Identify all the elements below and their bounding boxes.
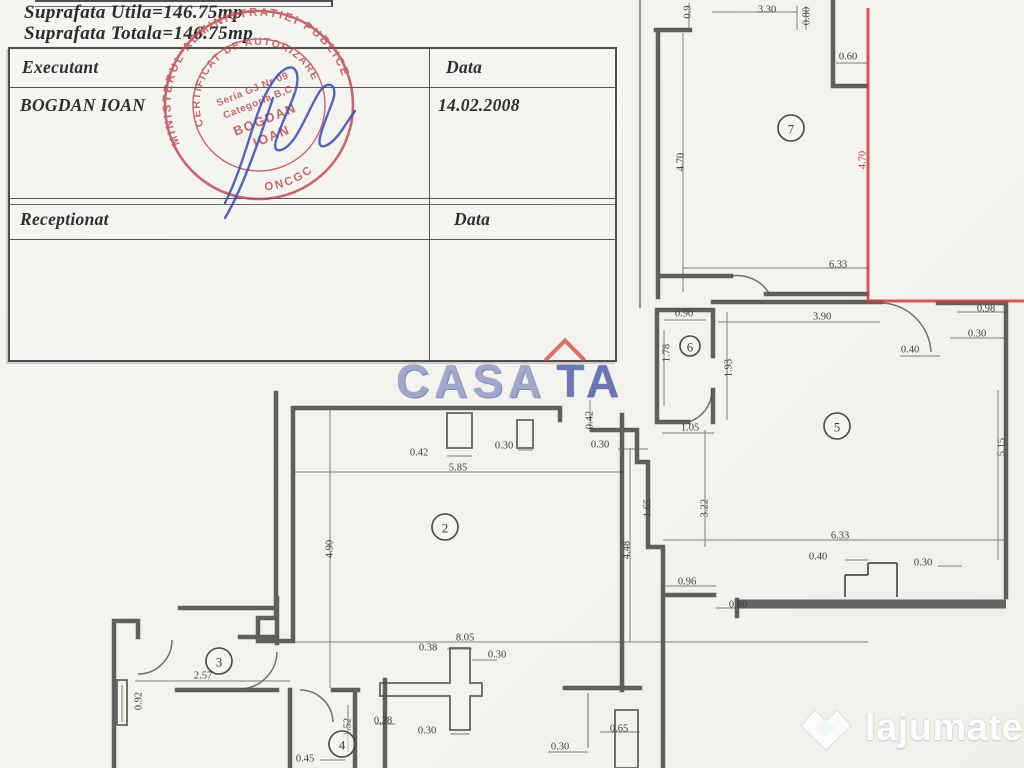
dimension-label: 0.30 xyxy=(488,649,506,660)
room-number-text: 6 xyxy=(687,340,694,355)
dimension-label: 4.48 xyxy=(621,541,632,559)
scanned-floor-plan-page: 0.93.300.800.604.704.706.330.901.781.931… xyxy=(0,0,1024,768)
data-label-1: Data xyxy=(446,57,482,78)
dimension-label: 0.40 xyxy=(809,551,827,562)
dimension-label: 0.30 xyxy=(551,741,569,752)
date-value: 14.02.2008 xyxy=(438,95,520,116)
room-number-text: 4 xyxy=(339,738,346,753)
dimension-label: 4.90 xyxy=(324,540,335,558)
dimension-label: 1.65 xyxy=(642,499,653,517)
dimension-label: 8.05 xyxy=(456,632,474,643)
dimension-label: 0.92 xyxy=(133,692,144,710)
red-annotation-line xyxy=(868,8,1024,301)
stamp-svg: MINISTERUL ADMINISTRATIEI PUBLICE ONCGC … xyxy=(155,3,370,235)
dimension-label: 0.30 xyxy=(591,439,609,450)
dimension-label: 0.96 xyxy=(678,576,696,587)
room-number-text: 7 xyxy=(788,122,795,137)
dimension-label: 0.98 xyxy=(977,303,995,314)
dimension-label: 0.30 xyxy=(495,440,513,451)
lajumate-watermark: lajumate.ro xyxy=(795,702,1024,754)
dimension-label: 0.90 xyxy=(675,308,693,319)
dimension-label: 6.33 xyxy=(829,259,847,270)
dimension-label: 0.30 xyxy=(914,557,932,568)
lajumate-logo-icon xyxy=(795,702,857,754)
dimension-label: 3.30 xyxy=(758,4,776,15)
dimension-label: 0.40 xyxy=(901,344,919,355)
dimension-label: 6.33 xyxy=(831,530,849,541)
wall-notch xyxy=(845,563,897,597)
dimension-label: 0.42 xyxy=(584,411,595,429)
room-number-text: 3 xyxy=(216,655,223,670)
dimension-label: 0.28 xyxy=(374,715,392,726)
room-number-text: 2 xyxy=(442,521,449,536)
dimension-label: 1.93 xyxy=(723,359,734,377)
data-label-2: Data xyxy=(454,209,490,230)
watermark-word-casa: CASA xyxy=(396,355,546,407)
executant-name: BOGDAN IOAN xyxy=(20,95,145,116)
room-number-text: 5 xyxy=(834,420,841,435)
executant-label: Executant xyxy=(22,57,99,78)
dimension-label: 0.60 xyxy=(839,51,857,62)
dimension-label: 5.85 xyxy=(449,462,467,473)
dimension-label: 4.70 xyxy=(857,151,868,169)
dimension-label: 0.45 xyxy=(296,753,314,764)
dimension-label: 3.22 xyxy=(699,499,710,517)
dimension-label: 0.42 xyxy=(410,447,428,458)
dimension-label: 1.05 xyxy=(681,422,699,433)
casa-ta-watermark: CASATA xyxy=(396,354,624,408)
dimension-label: 0.38 xyxy=(419,642,437,653)
dimension-label: 0.9 xyxy=(682,5,693,18)
receptionat-label: Receptionat xyxy=(20,209,109,230)
dimension-label: 2.57 xyxy=(194,670,212,681)
lajumate-brand-text: lajumate xyxy=(865,707,1023,750)
dimension-label: 0.80 xyxy=(801,7,812,25)
dimension-label: 1.78 xyxy=(661,344,672,362)
stamp-ring-bottom-text: ONCGC xyxy=(261,162,318,197)
dimension-label: 5.15 xyxy=(996,438,1007,456)
dimension-label: 0.65 xyxy=(610,723,628,734)
dimension-label: 0.30 xyxy=(968,328,986,339)
dimension-label: 0.80 xyxy=(729,599,747,610)
dimension-label: 0.30 xyxy=(418,725,436,736)
dimension-label: 4.70 xyxy=(675,153,686,171)
table-row-line-3 xyxy=(10,239,615,240)
dimension-label: 3.90 xyxy=(813,311,831,322)
